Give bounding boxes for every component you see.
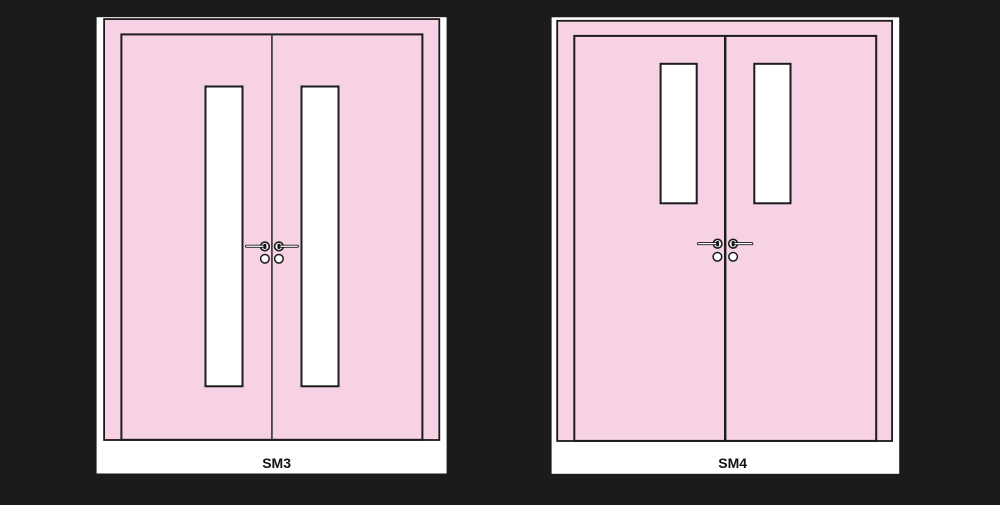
svg-text:SM3: SM3: [262, 455, 291, 471]
svg-text:SM4: SM4: [718, 455, 747, 471]
